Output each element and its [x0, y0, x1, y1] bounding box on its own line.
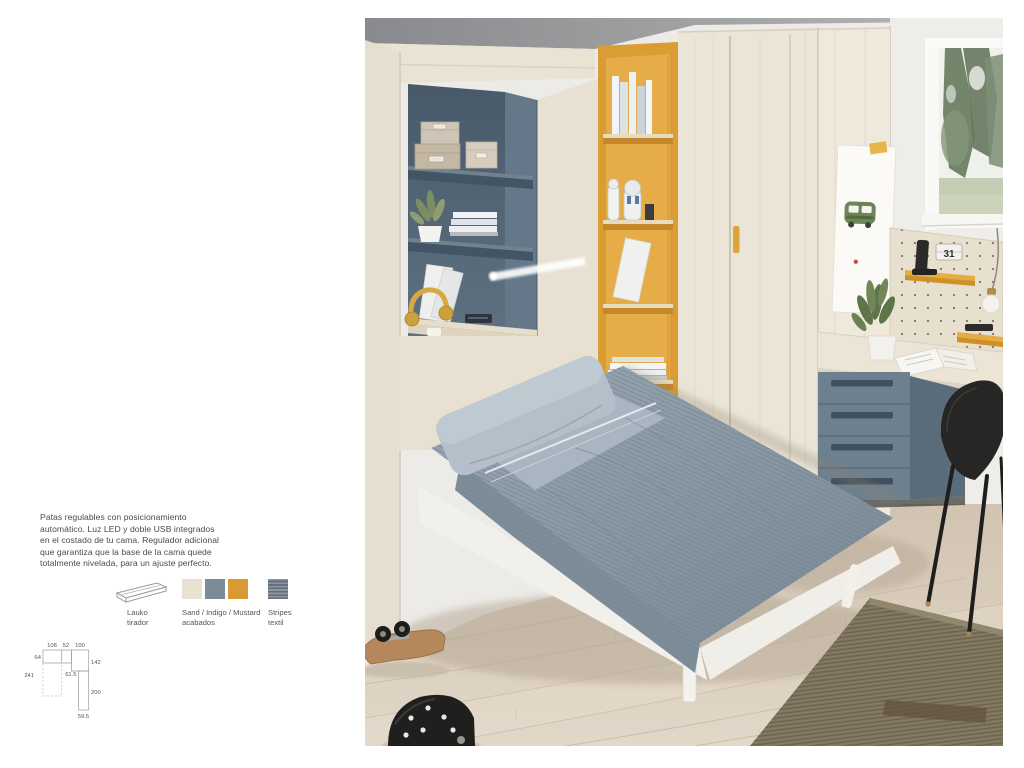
dim-59-5: 59.5 — [78, 714, 89, 720]
wallbed-latch — [427, 328, 441, 336]
finishes-label: Sand / Indigo / Mustard acabados — [182, 608, 261, 628]
photo-mustard-bookcase — [598, 42, 678, 424]
handle-label-line2: tirador — [127, 618, 149, 628]
room-photo-scene: 31 — [365, 18, 1003, 746]
description-line: que garantiza que la base de la cama que… — [40, 547, 219, 559]
textile-label-line2: textil — [268, 618, 292, 628]
description-line: Patas regulables con posicionamiento — [40, 512, 219, 524]
handle-label: Lauko tirador — [127, 608, 149, 628]
calendar-day: 31 — [943, 249, 955, 260]
description-line: en el costado de tu cama. Regulador adic… — [40, 535, 219, 547]
plant-pot — [868, 336, 896, 360]
poster-tape — [869, 141, 887, 154]
feature-description: Patas regulables con posicionamiento aut… — [40, 512, 219, 570]
wardrobe-handle — [733, 226, 740, 253]
flip-calendar: 31 — [936, 244, 962, 260]
swatch-sand — [182, 579, 202, 599]
hutch-books — [449, 212, 498, 236]
room-photo: 31 — [365, 18, 1003, 746]
handle-label-line1: Lauko — [127, 608, 149, 618]
description-line: automático. Luz LED y doble USB integrad… — [40, 524, 219, 536]
wallbed-left-panel — [365, 40, 400, 660]
textile-label-line1: Stripes — [268, 608, 292, 618]
description-line: totalmente nivelada, para un ajuste perf… — [40, 558, 219, 570]
textile-label: Stripes textil — [268, 608, 292, 628]
hutch-side-wall — [505, 92, 537, 348]
dim-142: 142 — [91, 660, 101, 666]
finishes-label-line1: Sand / Indigo / Mustard — [182, 608, 261, 618]
dim-108: 108 — [47, 643, 57, 649]
dim-52: 52 — [63, 643, 69, 649]
catalog-page: { "description": { "lines": [ "Patas reg… — [0, 0, 1024, 768]
swatch-stripes-textile — [268, 579, 288, 599]
photo-window — [922, 38, 1003, 230]
dim-61-5: 61.5 — [65, 672, 76, 678]
dim-241: 241 — [24, 673, 34, 679]
dim-64: 64 — [35, 655, 42, 661]
dimension-diagram: 108 52 100 64 241 142 61.5 200 59.5 — [20, 636, 140, 728]
glasses-case — [965, 324, 993, 331]
finishes-label-line2: acabados — [182, 618, 261, 628]
window-sill — [922, 214, 1003, 225]
window-trees — [939, 48, 1003, 214]
swatch-mustard — [228, 579, 248, 599]
bookcase-books-top — [612, 72, 652, 134]
swatch-indigo — [205, 579, 225, 599]
dim-200: 200 — [91, 690, 101, 696]
handle-icon — [114, 580, 172, 608]
dim-100: 100 — [75, 643, 85, 649]
